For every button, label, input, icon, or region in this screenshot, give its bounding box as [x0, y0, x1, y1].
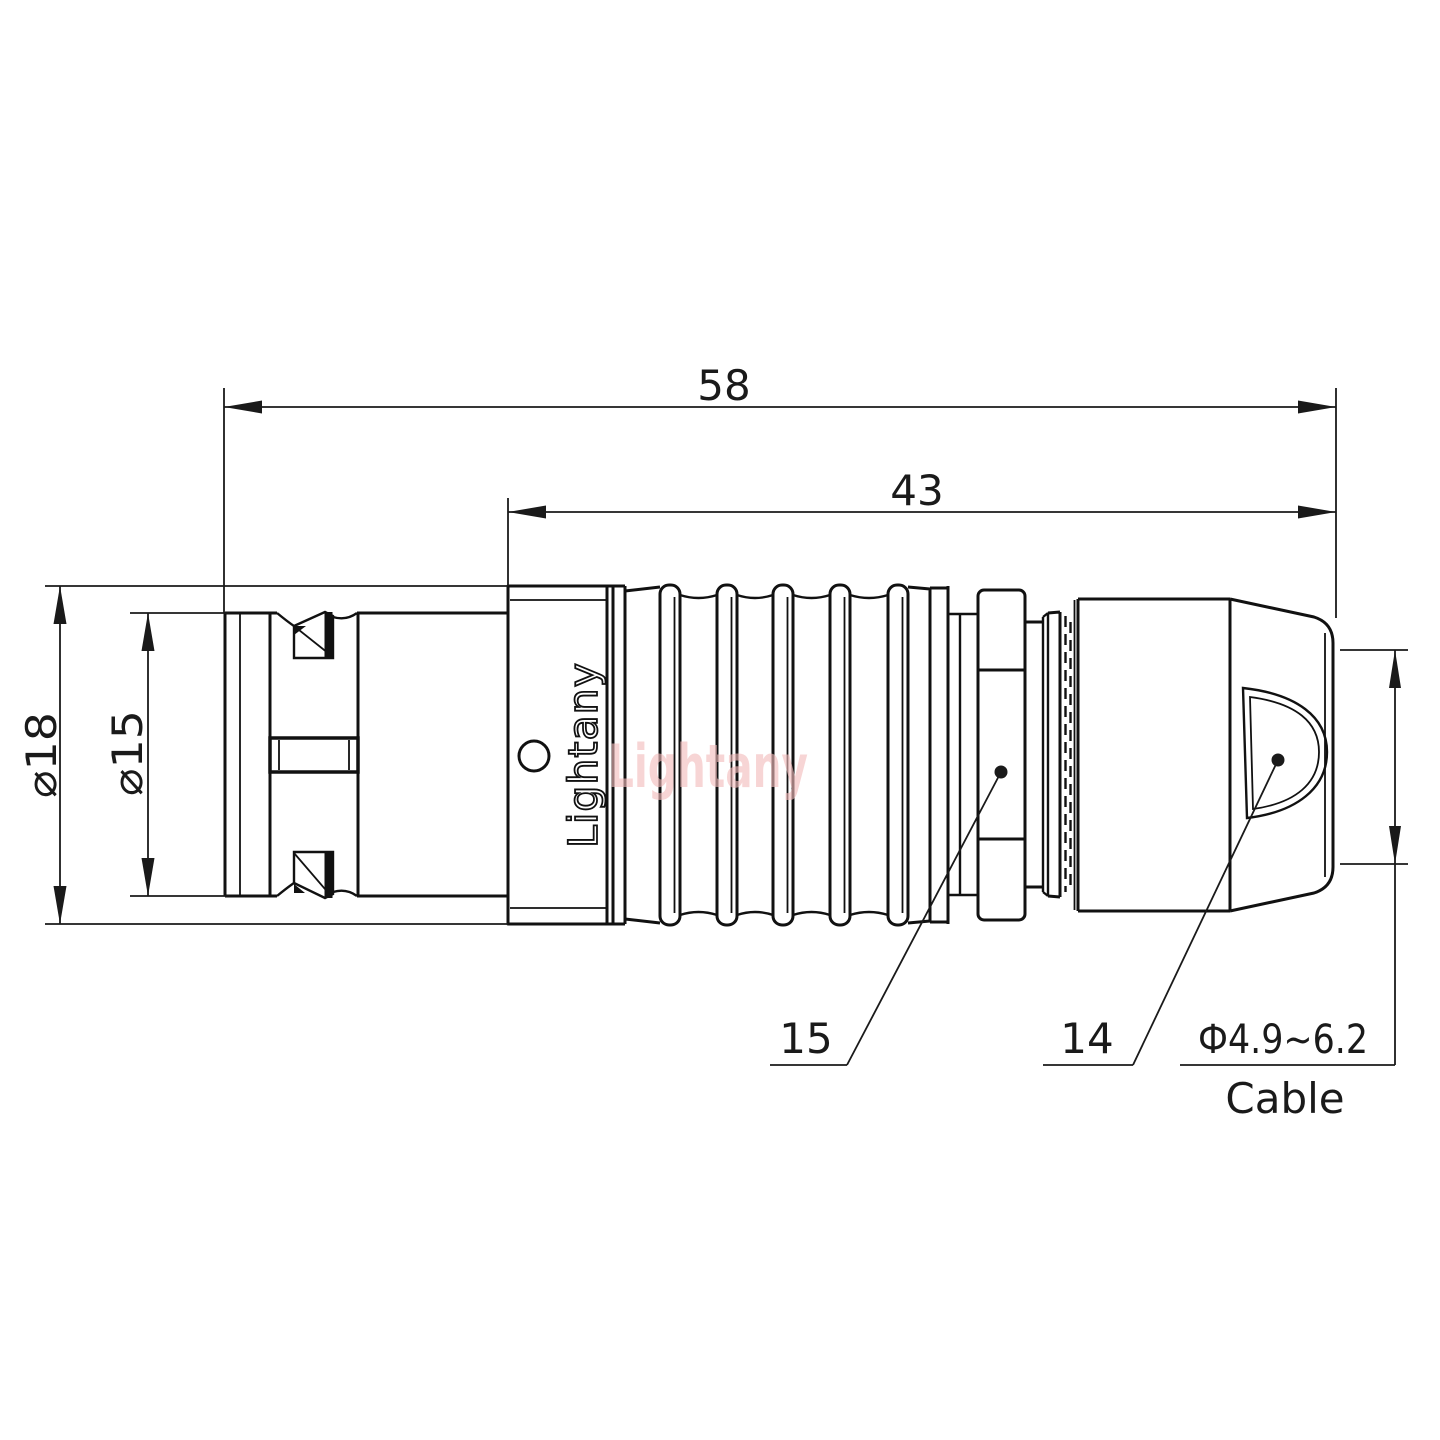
callout-number-15: 15	[779, 1014, 832, 1063]
key-side-face	[325, 852, 333, 898]
sleeve-centre-window	[270, 738, 358, 772]
leader-dot	[1272, 754, 1285, 767]
rib	[888, 585, 908, 925]
cable-word-text: Cable	[1225, 1074, 1344, 1123]
latch-key-bottom	[294, 852, 333, 898]
backshell-lip	[1048, 612, 1060, 897]
watermark-text: Lightany	[608, 732, 808, 802]
key-side-face	[325, 612, 333, 658]
dimension-value-d18: ⌀18	[17, 712, 66, 798]
connector-drawing: Lightany	[0, 0, 1440, 1440]
dimension-cable-entry: Ф4.9~6.2 Cable	[1180, 650, 1408, 1123]
dimension-value-58: 58	[697, 361, 750, 410]
dimension-overall-length: 58	[224, 361, 1336, 618]
coupling-nut	[978, 590, 1025, 920]
arrowhead-up	[1389, 650, 1401, 688]
bend-relief-window-outer	[1243, 688, 1327, 818]
bellows-neck	[948, 614, 978, 895]
arrowhead-top	[142, 613, 155, 651]
arrowhead-right	[1298, 401, 1336, 414]
rear-neck	[1025, 622, 1043, 887]
dimension-outer-diameter: ⌀18	[17, 586, 508, 924]
leader-dot	[995, 766, 1008, 779]
callout-number-14: 14	[1060, 1014, 1113, 1063]
arrowhead-left	[224, 401, 262, 414]
arrowhead-bottom	[54, 886, 67, 924]
nut-body	[978, 590, 1025, 920]
bellows-end-ring	[908, 586, 948, 924]
arrowhead-bottom	[142, 858, 155, 896]
arrowhead-top	[54, 586, 67, 624]
backshell-cylinder	[1078, 599, 1230, 911]
latch-key-top	[294, 612, 333, 658]
connector-backshell	[1025, 599, 1333, 911]
dimension-front-diameter: ⌀15	[103, 613, 230, 896]
rib	[830, 585, 850, 925]
dimension-body-length: 43	[508, 466, 1336, 586]
brand-marking-text: Lightany	[561, 662, 607, 848]
dimension-value-43: 43	[890, 466, 943, 515]
washer	[1043, 613, 1048, 896]
technical-drawing-canvas: Lightany	[0, 0, 1440, 1440]
arrowhead-right	[1298, 506, 1336, 519]
cable-range-text: Ф4.9~6.2	[1198, 1017, 1368, 1063]
dimension-value-d15: ⌀15	[103, 710, 152, 796]
arrowhead-left	[508, 506, 546, 519]
leader-line	[847, 772, 1001, 1065]
window-frame	[270, 738, 358, 772]
arrowhead-down	[1389, 826, 1401, 864]
connector-front-sleeve	[225, 612, 508, 898]
